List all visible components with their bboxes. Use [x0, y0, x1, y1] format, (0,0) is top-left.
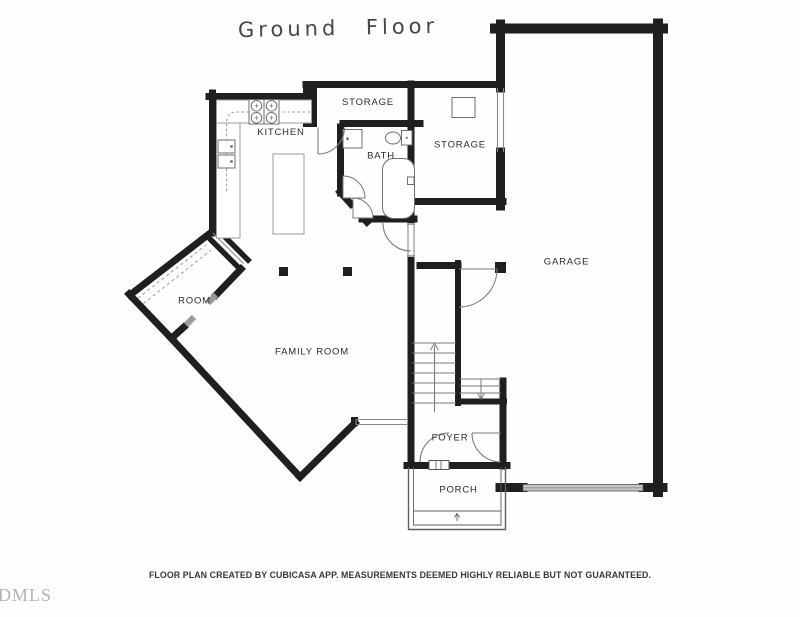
kitchen-label: KITCHEN: [257, 127, 304, 138]
garage-entry-door: [459, 269, 497, 307]
room-label: ROOM: [178, 296, 211, 307]
staircase-up: [412, 343, 456, 412]
floorplan-drawing: KITCHEN STORAGE BATH STORAGE GARAGE ROOM…: [0, 0, 800, 617]
doorway-hall: [406, 223, 416, 257]
porch-label: PORCH: [439, 485, 477, 496]
water-heater-icon: [452, 98, 475, 118]
watermark: DMLS: [0, 585, 52, 606]
porch-step-arrow-icon: [455, 514, 460, 522]
bathtub-icon: [383, 159, 415, 219]
disclaimer-text: FLOOR PLAN CREATED BY CUBICASA APP. MEAS…: [0, 570, 800, 580]
garage-door: [523, 485, 643, 492]
window-family-room: [356, 420, 407, 425]
staircase-landing-down: [460, 379, 502, 399]
toilet-icon: [386, 131, 413, 146]
bath-label: BATH: [367, 151, 395, 162]
storage-right-label: STORAGE: [434, 140, 486, 151]
garage-label: GARAGE: [544, 257, 589, 268]
porch-outline: [409, 467, 506, 530]
column: [343, 267, 352, 276]
floorplan-page: Ground Floor: [0, 0, 800, 617]
kitchen-island: [273, 154, 304, 234]
family-room-label: FAMILY ROOM: [275, 347, 349, 358]
vanity-sink-icon: [343, 130, 362, 149]
foyer-garage-door: [472, 433, 501, 462]
storage-upper-label: STORAGE: [342, 97, 394, 108]
windows: [356, 88, 504, 425]
bath-door: [343, 176, 373, 218]
window-garage-wall: [498, 88, 504, 152]
column: [279, 267, 288, 276]
foyer-label: FOYER: [432, 433, 469, 444]
stove-icon: [249, 100, 279, 125]
